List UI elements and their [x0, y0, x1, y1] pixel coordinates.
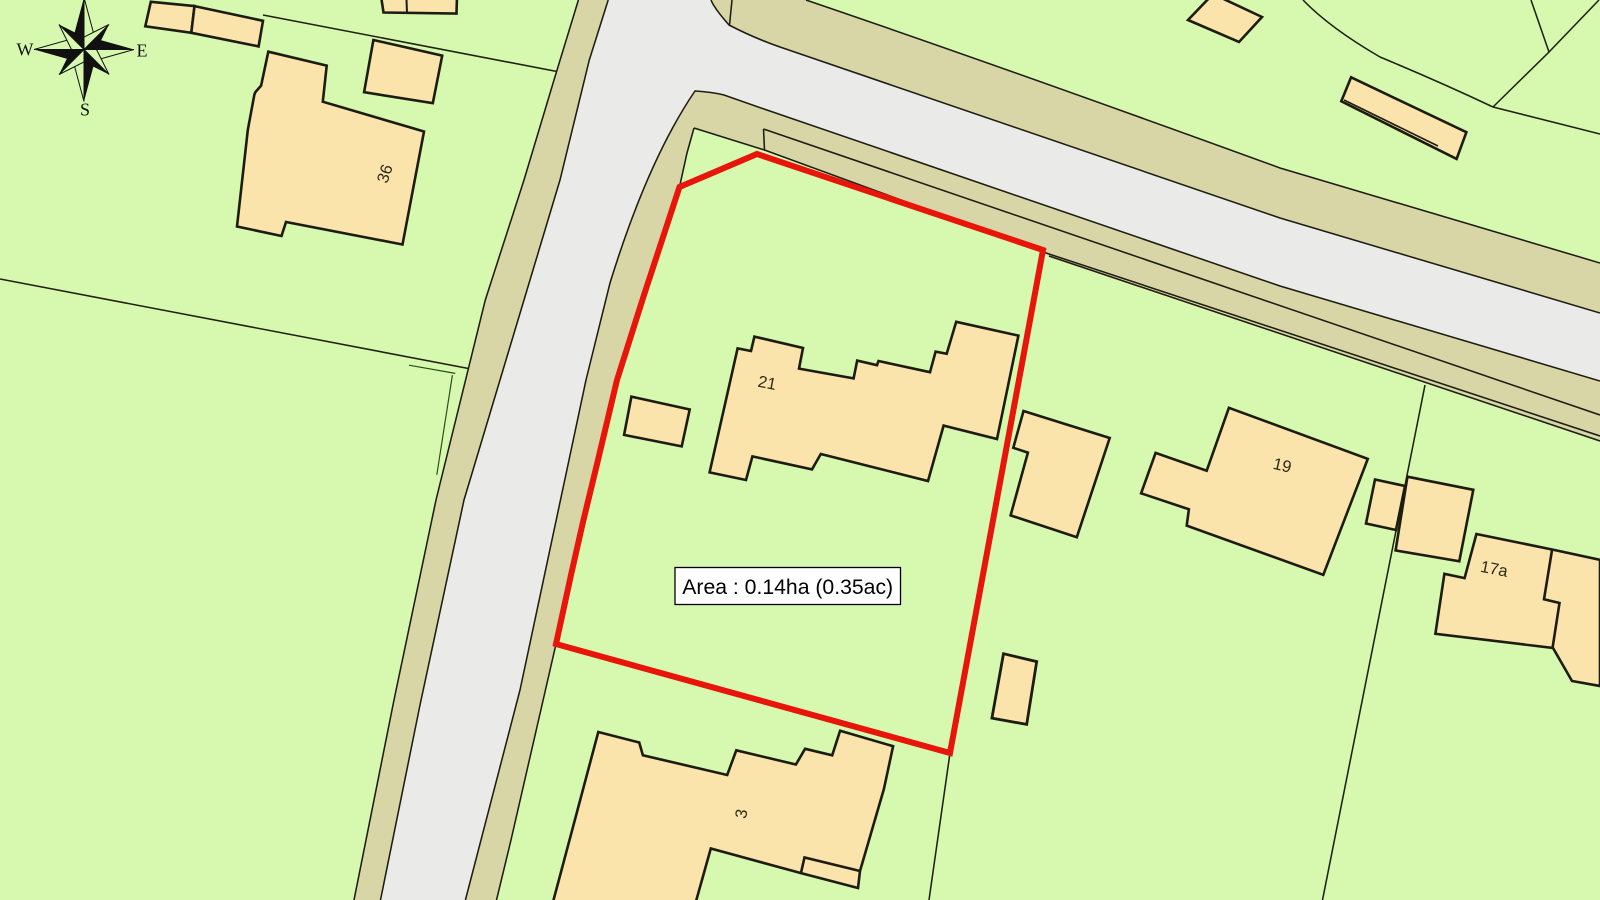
svg-text:S: S: [80, 100, 90, 120]
svg-text:Area : 0.14ha (0.35ac): Area : 0.14ha (0.35ac): [682, 576, 893, 599]
svg-text:21: 21: [756, 373, 777, 394]
svg-text:W: W: [17, 40, 34, 60]
svg-text:E: E: [137, 41, 148, 61]
